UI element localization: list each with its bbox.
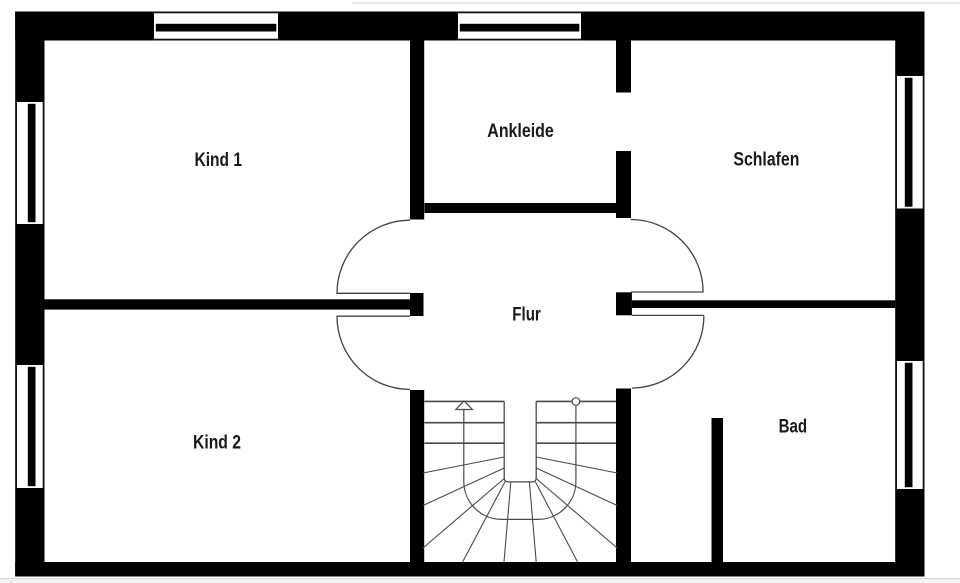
svg-text:Kind 2: Kind 2 bbox=[193, 433, 241, 454]
svg-text:Bad: Bad bbox=[779, 417, 808, 438]
svg-text:Kind 1: Kind 1 bbox=[195, 150, 243, 171]
svg-text:Schlafen: Schlafen bbox=[733, 150, 799, 171]
svg-text:Ankleide: Ankleide bbox=[487, 121, 554, 142]
svg-text:Flur: Flur bbox=[512, 305, 541, 326]
